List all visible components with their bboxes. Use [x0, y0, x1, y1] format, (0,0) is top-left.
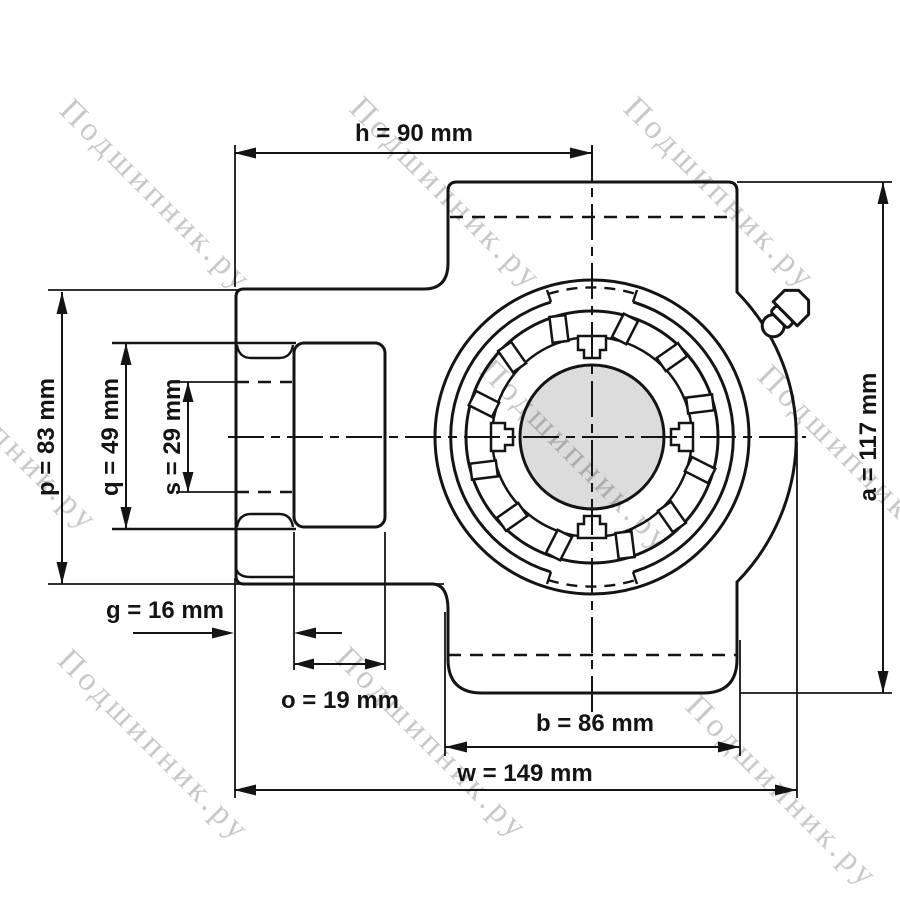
dim-label-s: s = 29 mm — [159, 379, 186, 496]
dim-label-g: g = 16 mm — [106, 597, 224, 624]
guide-boss — [294, 343, 385, 527]
dim-label-b: b = 86 mm — [536, 710, 654, 737]
technical-drawing-page: h = 90 mm p = 83 mm q = 49 mm s = 29 mm … — [0, 0, 900, 900]
dim-label-q: q = 49 mm — [97, 378, 124, 496]
takeup-bearing-unit-drawing: h = 90 mm p = 83 mm q = 49 mm s = 29 mm … — [0, 0, 900, 900]
